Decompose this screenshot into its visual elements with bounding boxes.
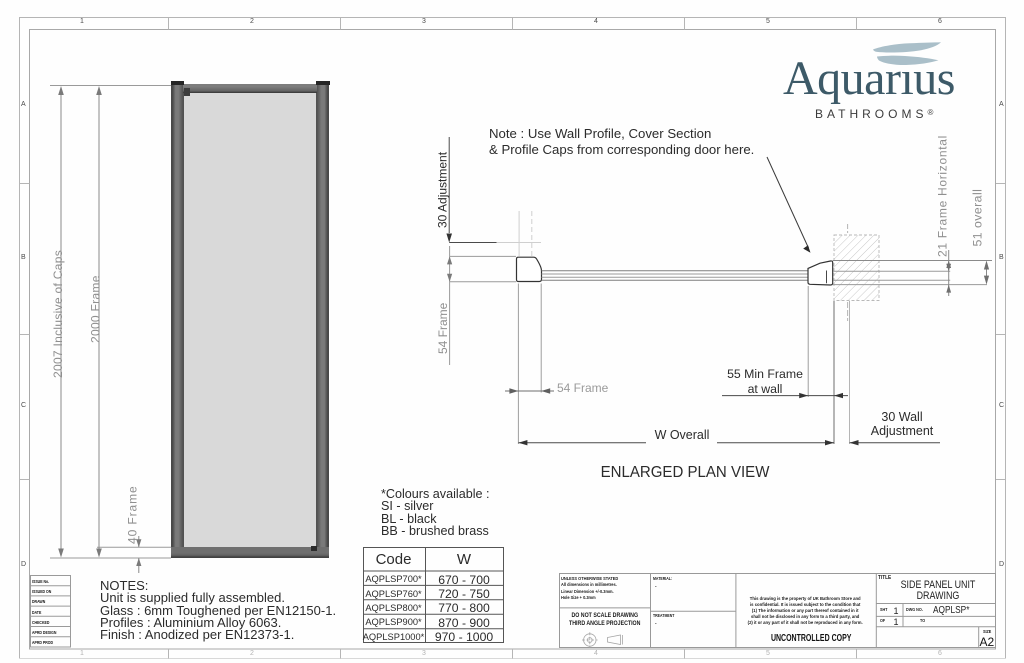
svg-text:40 Frame: 40 Frame bbox=[126, 485, 140, 544]
svg-text:21 Frame Horizontal: 21 Frame Horizontal bbox=[936, 135, 950, 257]
svg-text:54 Frame: 54 Frame bbox=[436, 302, 450, 354]
svg-text:51 overall: 51 overall bbox=[971, 189, 985, 247]
svg-text:30 Adjustment: 30 Adjustment bbox=[436, 151, 450, 228]
svg-text:2007 Inclusive of Caps: 2007 Inclusive of Caps bbox=[51, 250, 65, 378]
svg-text:2000 Frame: 2000 Frame bbox=[89, 275, 103, 343]
